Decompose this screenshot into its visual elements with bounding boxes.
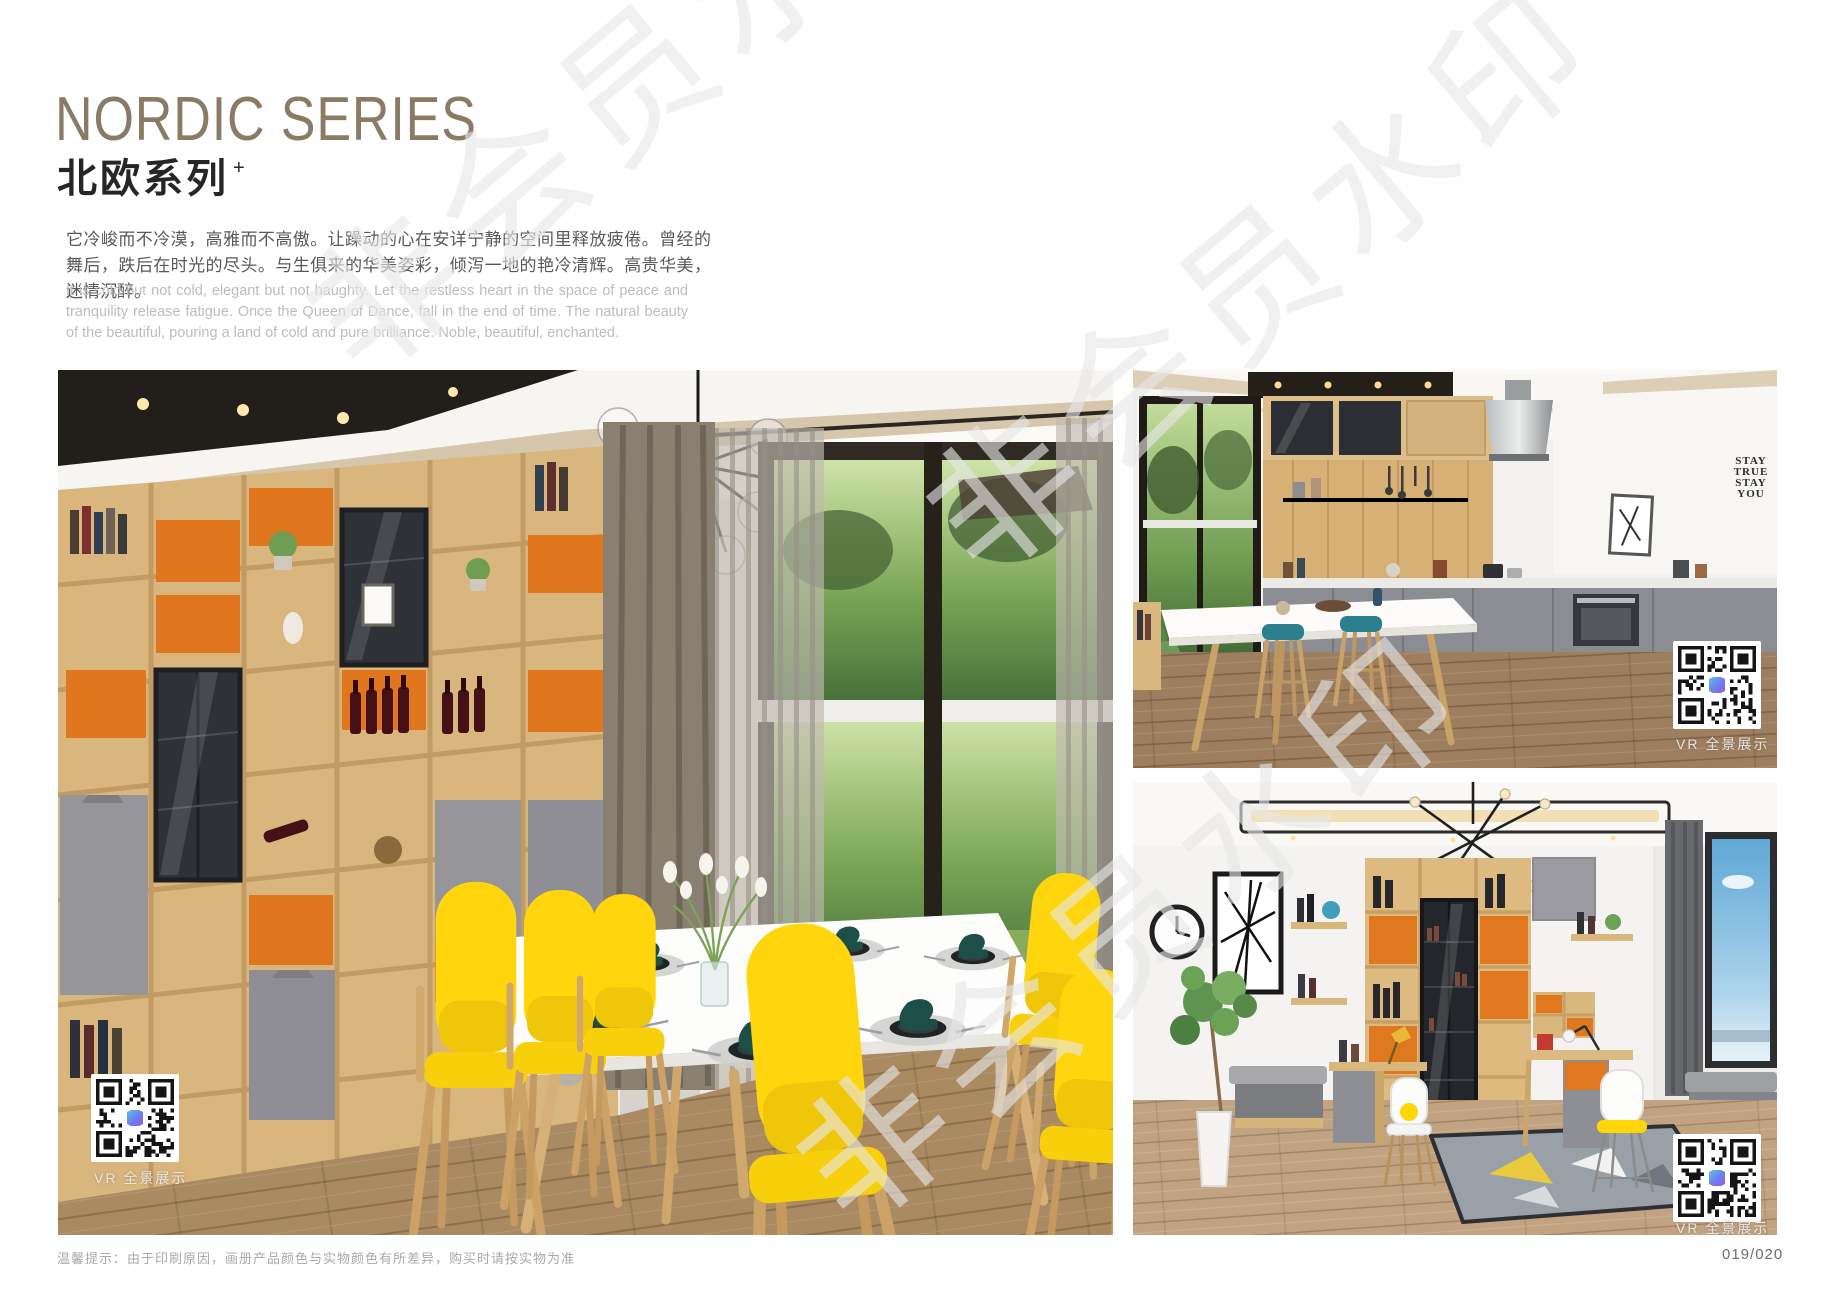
qr-pattern bbox=[1678, 1139, 1756, 1217]
window-seat bbox=[1685, 1072, 1777, 1092]
page-subtitle-cn: 北欧系列+ bbox=[57, 146, 248, 204]
upper-cabinets bbox=[1263, 396, 1493, 460]
leaning-picture-frame bbox=[1610, 495, 1653, 555]
qr-pattern bbox=[96, 1079, 174, 1157]
vr-label-kitchen: VR 全景展示 bbox=[1676, 734, 1769, 754]
cube-shelf bbox=[1533, 992, 1595, 1038]
qr-code-dining bbox=[91, 1074, 179, 1162]
catalog-page: NORDIC SERIES 北欧系列+ 它冷峻而不冷漠，高雅而不高傲。让躁动的心… bbox=[0, 0, 1836, 1307]
vr-label-study: VR 全景展示 bbox=[1676, 1218, 1769, 1235]
gray-wall-cabinet bbox=[1533, 858, 1595, 920]
vr-label-dining: VR 全景展示 bbox=[94, 1168, 187, 1188]
dining-room-scene bbox=[58, 370, 1113, 1235]
subtitle-plus-mark: + bbox=[233, 157, 248, 179]
wall-clock bbox=[1152, 907, 1202, 957]
footer-note: 温馨提示：由于印刷原因，画册产品颜色与实物颜色有所差异，购买时请按实物为准 bbox=[57, 1248, 575, 1267]
low-bookshelf bbox=[1133, 602, 1161, 690]
dining-room-photo: VR 全景展示 bbox=[58, 370, 1113, 1235]
page-title: NORDIC SERIES bbox=[55, 84, 477, 155]
qr-code-kitchen bbox=[1673, 641, 1761, 729]
kitchen-photo: STAY TRUE STAY YOU VR 全景展示 bbox=[1133, 370, 1777, 768]
page-number: 019/020 bbox=[1722, 1246, 1783, 1263]
wall-art-text: STAY TRUE STAY YOU bbox=[1731, 456, 1771, 500]
qr-code-study bbox=[1673, 1134, 1761, 1222]
subtitle-text: 北欧系列 bbox=[57, 157, 229, 201]
study-bookcase bbox=[1365, 858, 1531, 1128]
qr-pattern bbox=[1678, 646, 1756, 724]
study-room-photo: VR 全景展示 bbox=[1133, 782, 1777, 1235]
intro-paragraph-en: It is cold but not cold, elegant but not… bbox=[66, 281, 688, 344]
study-window bbox=[1665, 820, 1777, 1118]
bench bbox=[1229, 1066, 1327, 1128]
wall-art-line: YOU bbox=[1731, 489, 1771, 500]
